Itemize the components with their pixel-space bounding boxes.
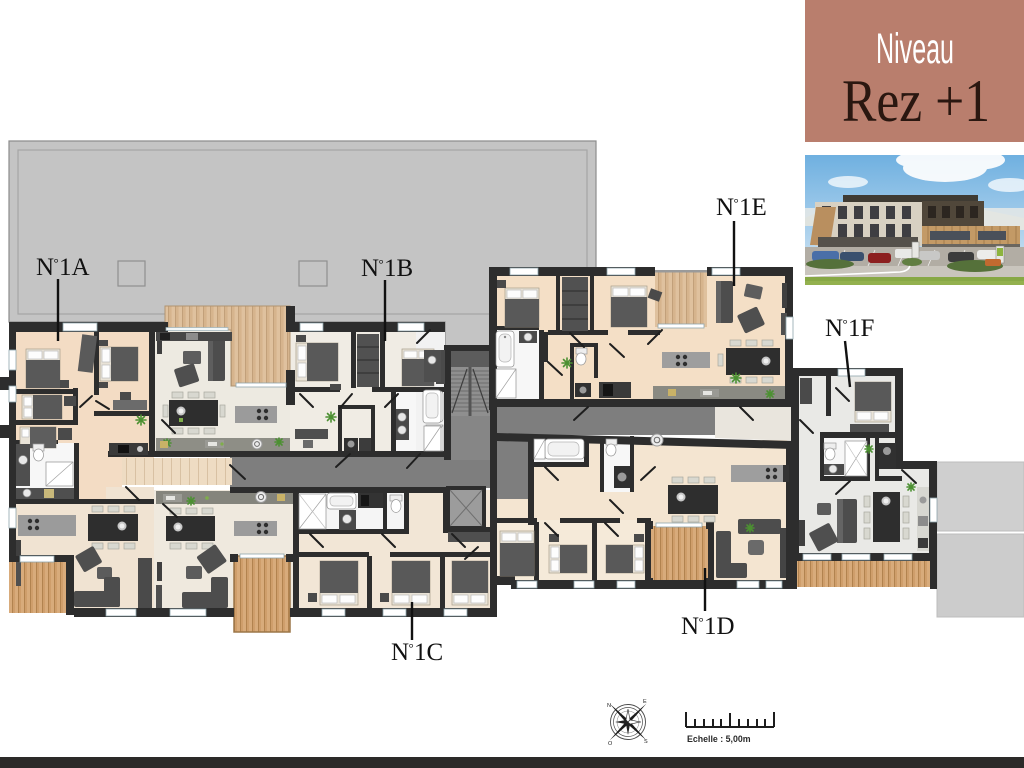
svg-text:1D: 1D (704, 613, 735, 640)
svg-text:N: N (716, 194, 734, 221)
svg-text:1A: 1A (59, 254, 90, 281)
svg-text:1B: 1B (384, 255, 413, 282)
svg-text:°: ° (843, 316, 848, 331)
svg-text:N: N (36, 254, 54, 281)
svg-text:1E: 1E (739, 194, 767, 221)
svg-text:1F: 1F (848, 315, 874, 342)
svg-text:Niveau: Niveau (876, 25, 954, 73)
svg-text:N: N (391, 639, 409, 666)
svg-text:E: E (643, 699, 647, 705)
svg-text:Echelle : 5,00m: Echelle : 5,00m (687, 734, 751, 744)
svg-text:1C: 1C (414, 639, 443, 666)
svg-text:N: N (361, 255, 379, 282)
svg-text:°: ° (409, 640, 414, 655)
svg-text:S: S (644, 739, 648, 745)
svg-text:°: ° (699, 614, 704, 629)
svg-text:°: ° (379, 256, 384, 271)
svg-text:N: N (607, 703, 611, 709)
svg-text:Rez +1: Rez +1 (842, 68, 990, 134)
svg-text:N: N (825, 315, 843, 342)
svg-text:°: ° (54, 255, 59, 270)
svg-text:O: O (608, 741, 613, 747)
svg-text:°: ° (734, 195, 739, 210)
svg-text:N: N (681, 613, 699, 640)
